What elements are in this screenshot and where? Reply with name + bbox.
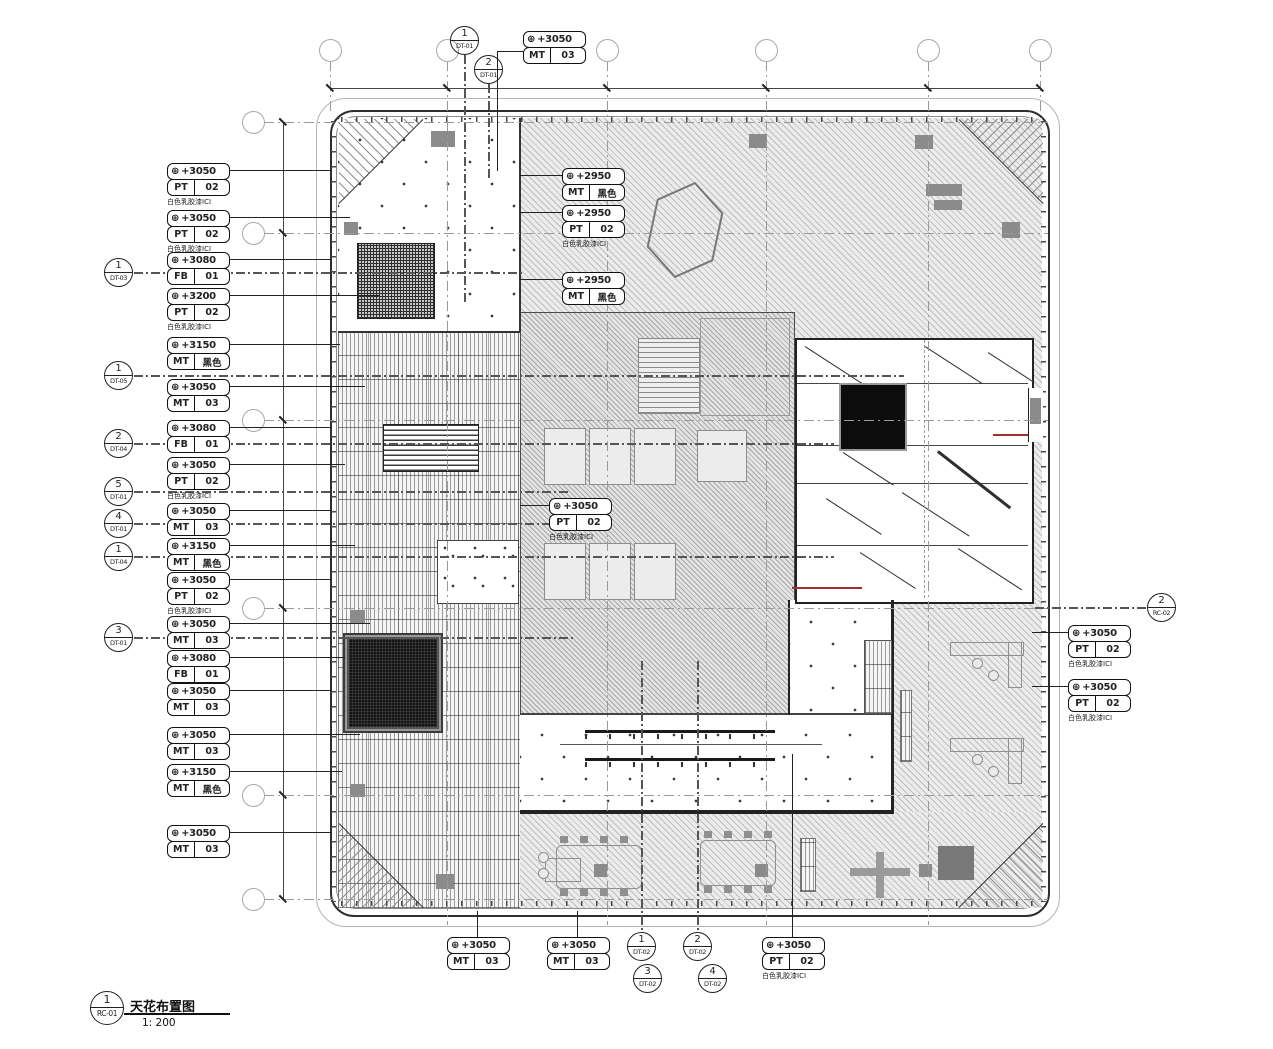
ceiling-elevation-tag: ⊕+2950 MT 黑色 xyxy=(562,272,625,306)
drawing-title-marker: 1 RC-01 xyxy=(90,991,124,1025)
drawing-title-underline xyxy=(124,1013,230,1015)
elevation-value: +3050 xyxy=(181,619,216,630)
elevation-value: +3050 xyxy=(181,166,216,177)
ceiling-elevation-tag: ⊕+3150 MT 黑色 xyxy=(167,538,230,572)
finish-code: FB xyxy=(168,269,195,284)
finish-code: PT xyxy=(1069,642,1096,657)
finish-code: MT xyxy=(168,396,195,411)
elevation-value: +3050 xyxy=(181,575,216,586)
finish-code: PT xyxy=(550,515,577,530)
finish-row: PT 02 xyxy=(1068,641,1131,658)
elevation-target-icon: ⊕ xyxy=(553,502,561,512)
elevation-target-icon: ⊕ xyxy=(566,172,574,182)
leader-line xyxy=(230,623,370,624)
finish-number: 02 xyxy=(195,305,229,320)
elevation-value-row: ⊕+3050 xyxy=(167,616,230,633)
finish-number: 02 xyxy=(195,474,229,489)
elevation-value-row: ⊕+3050 xyxy=(167,379,230,396)
elevation-value-row: ⊕+3050 xyxy=(167,503,230,520)
finish-number: 02 xyxy=(577,515,611,530)
finish-row: PT 02 xyxy=(762,953,825,970)
ceiling-elevation-tag: ⊕+3050 PT 02 白色乳胶漆ICI xyxy=(762,937,825,981)
elevation-value-row: ⊕+3050 xyxy=(167,210,230,227)
elevation-value-row: ⊕+2950 xyxy=(562,272,625,289)
elevation-value-row: ⊕+2950 xyxy=(562,168,625,185)
finish-description: 白色乳胶漆ICI xyxy=(167,491,230,501)
elevation-target-icon: ⊕ xyxy=(171,461,179,471)
elevation-target-icon: ⊕ xyxy=(171,654,179,664)
finish-code: MT xyxy=(448,954,475,969)
finish-code: MT xyxy=(168,781,195,796)
elevation-value: +3150 xyxy=(181,767,216,778)
ceiling-elevation-tag: ⊕+3050 PT 02 白色乳胶漆ICI xyxy=(549,498,612,542)
elevation-target-icon: ⊕ xyxy=(171,829,179,839)
elevation-value-row: ⊕+3050 xyxy=(549,498,612,515)
finish-number: 03 xyxy=(195,396,229,411)
elevation-target-icon: ⊕ xyxy=(171,731,179,741)
elevation-value-row: ⊕+2950 xyxy=(562,205,625,222)
finish-row: MT 黑色 xyxy=(562,184,625,201)
finish-number: 03 xyxy=(195,744,229,759)
elevation-target-icon: ⊕ xyxy=(171,507,179,517)
finish-row: PT 02 xyxy=(167,226,230,243)
ceiling-elevation-tag: ⊕+3050 MT 03 xyxy=(547,937,610,971)
ceiling-elevation-tag: ⊕+3150 MT 黑色 xyxy=(167,764,230,798)
leader-line xyxy=(230,217,350,218)
elevation-target-icon: ⊕ xyxy=(566,209,574,219)
finish-code: MT xyxy=(168,354,195,369)
elevation-target-icon: ⊕ xyxy=(171,167,179,177)
elevation-value: +2950 xyxy=(576,275,611,286)
finish-number: 03 xyxy=(575,954,609,969)
leader-line xyxy=(520,505,549,506)
leader-line xyxy=(230,386,365,387)
elevation-target-icon: ⊕ xyxy=(451,941,459,951)
ceiling-elevation-tag: ⊕+3050 PT 02 白色乳胶漆ICI xyxy=(1068,679,1131,723)
elevation-target-icon: ⊕ xyxy=(171,383,179,393)
elevation-value: +3080 xyxy=(181,423,216,434)
leader-line xyxy=(497,51,523,52)
finish-code: FB xyxy=(168,667,195,682)
elevation-value: +2950 xyxy=(576,208,611,219)
elevation-value: +3050 xyxy=(181,506,216,517)
finish-number: 02 xyxy=(195,227,229,242)
drawing-sheet: RC-01 xyxy=(91,1008,123,1020)
elevation-value: +3050 xyxy=(181,213,216,224)
elevation-value: +3050 xyxy=(181,828,216,839)
elevation-target-icon: ⊕ xyxy=(1072,683,1080,693)
leader-line xyxy=(230,170,332,171)
finish-number: 02 xyxy=(195,180,229,195)
elevation-value: +3050 xyxy=(537,34,572,45)
ceiling-elevation-tag: ⊕+3080 FB 01 xyxy=(167,650,230,684)
finish-row: MT 03 xyxy=(547,953,610,970)
finish-row: MT 黑色 xyxy=(167,554,230,571)
finish-row: MT 03 xyxy=(167,519,230,536)
finish-row: MT 03 xyxy=(167,395,230,412)
leader-line xyxy=(230,427,332,428)
leader-line xyxy=(230,295,380,296)
elevation-value-row: ⊕+3150 xyxy=(167,538,230,555)
finish-number: 03 xyxy=(551,48,585,63)
leader-line xyxy=(230,690,332,691)
elevation-value: +2950 xyxy=(576,171,611,182)
finish-number: 02 xyxy=(1096,696,1130,711)
elevation-value-row: ⊕+3050 xyxy=(523,31,586,48)
elevation-target-icon: ⊕ xyxy=(1072,629,1080,639)
elevation-value: +3050 xyxy=(561,940,596,951)
elevation-target-icon: ⊕ xyxy=(766,941,774,951)
finish-number: 02 xyxy=(1096,642,1130,657)
leader-line xyxy=(230,545,355,546)
elevation-target-icon: ⊕ xyxy=(171,292,179,302)
finish-code: PT xyxy=(168,180,195,195)
elevation-value-row: ⊕+3050 xyxy=(167,163,230,180)
finish-number: 03 xyxy=(195,520,229,535)
ceiling-elevation-tag: ⊕+2950 MT 黑色 xyxy=(562,168,625,202)
finish-row: PT 02 xyxy=(167,179,230,196)
elevation-target-icon: ⊕ xyxy=(171,256,179,266)
finish-code: PT xyxy=(563,222,590,237)
ceiling-elevation-tag: ⊕+3050 MT 03 xyxy=(167,683,230,717)
ceiling-elevation-tag: ⊕+3050 MT 03 xyxy=(167,379,230,413)
finish-number: 01 xyxy=(195,437,229,452)
elevation-tags: ⊕+3050 PT 02 白色乳胶漆ICI ⊕+3050 PT 02 白色乳胶漆… xyxy=(0,0,1273,1049)
leader-line xyxy=(520,175,562,176)
elevation-target-icon: ⊕ xyxy=(171,214,179,224)
finish-description: 白色乳胶漆ICI xyxy=(167,606,230,616)
finish-code: PT xyxy=(168,227,195,242)
elevation-value: +3050 xyxy=(181,686,216,697)
finish-number: 03 xyxy=(195,633,229,648)
finish-row: PT 02 xyxy=(167,588,230,605)
finish-row: FB 01 xyxy=(167,666,230,683)
elevation-value: +3150 xyxy=(181,340,216,351)
elevation-value: +3050 xyxy=(181,460,216,471)
elevation-target-icon: ⊕ xyxy=(566,276,574,286)
elevation-value-row: ⊕+3050 xyxy=(167,572,230,589)
ceiling-elevation-tag: ⊕+3050 MT 03 xyxy=(167,727,230,761)
leader-line xyxy=(230,259,332,260)
ceiling-elevation-tag: ⊕+3050 MT 03 xyxy=(523,31,586,65)
finish-row: MT 03 xyxy=(167,743,230,760)
elevation-value-row: ⊕+3050 xyxy=(167,727,230,744)
leader-line xyxy=(577,911,578,937)
finish-row: PT 02 xyxy=(562,221,625,238)
finish-code: MT xyxy=(168,633,195,648)
finish-description: 白色乳胶漆ICI xyxy=(167,322,230,332)
leader-line xyxy=(520,279,562,280)
finish-number: 01 xyxy=(195,269,229,284)
finish-number: 01 xyxy=(195,667,229,682)
elevation-target-icon: ⊕ xyxy=(171,768,179,778)
elevation-value: +3050 xyxy=(563,501,598,512)
finish-row: MT 黑色 xyxy=(167,353,230,370)
finish-row: MT 03 xyxy=(167,699,230,716)
leader-line xyxy=(230,657,345,658)
ceiling-elevation-tag: ⊕+3050 MT 03 xyxy=(167,616,230,650)
ceiling-elevation-tag: ⊕+3050 MT 03 xyxy=(447,937,510,971)
ceiling-elevation-tag: ⊕+3050 PT 02 白色乳胶漆ICI xyxy=(1068,625,1131,669)
ceiling-elevation-tag: ⊕+2950 PT 02 白色乳胶漆ICI xyxy=(562,205,625,249)
elevation-value: +3050 xyxy=(461,940,496,951)
elevation-value-row: ⊕+3080 xyxy=(167,252,230,269)
leader-line xyxy=(230,579,332,580)
ceiling-elevation-tag: ⊕+3080 FB 01 xyxy=(167,252,230,286)
elevation-value: +3200 xyxy=(181,291,216,302)
elevation-value: +3150 xyxy=(181,541,216,552)
finish-number: 02 xyxy=(790,954,824,969)
leader-line xyxy=(230,344,340,345)
finish-row: FB 01 xyxy=(167,436,230,453)
elevation-target-icon: ⊕ xyxy=(527,35,535,45)
finish-description: 白色乳胶漆ICI xyxy=(549,532,612,542)
finish-code: MT xyxy=(548,954,575,969)
elevation-value: +3050 xyxy=(1082,628,1117,639)
ceiling-elevation-tag: ⊕+3050 PT 02 白色乳胶漆ICI xyxy=(167,210,230,254)
finish-number: 03 xyxy=(195,842,229,857)
elevation-value-row: ⊕+3080 xyxy=(167,650,230,667)
elevation-target-icon: ⊕ xyxy=(551,941,559,951)
leader-line xyxy=(230,771,342,772)
elevation-value-row: ⊕+3050 xyxy=(447,937,510,954)
elevation-value: +3050 xyxy=(776,940,811,951)
elevation-value-row: ⊕+3050 xyxy=(167,825,230,842)
ceiling-elevation-tag: ⊕+3150 MT 黑色 xyxy=(167,337,230,371)
finish-code: PT xyxy=(168,305,195,320)
elevation-target-icon: ⊕ xyxy=(171,620,179,630)
finish-row: FB 01 xyxy=(167,268,230,285)
ceiling-elevation-tag: ⊕+3050 MT 03 xyxy=(167,825,230,859)
finish-code: MT xyxy=(168,744,195,759)
leader-line xyxy=(1032,632,1068,633)
drawing-scale: 1: 200 xyxy=(142,1017,176,1029)
finish-row: MT 03 xyxy=(167,632,230,649)
elevation-target-icon: ⊕ xyxy=(171,341,179,351)
finish-number: 03 xyxy=(195,700,229,715)
ceiling-elevation-tag: ⊕+3200 PT 02 白色乳胶漆ICI xyxy=(167,288,230,332)
finish-description: 白色乳胶漆ICI xyxy=(562,239,625,249)
finish-row: PT 02 xyxy=(549,514,612,531)
finish-number: 02 xyxy=(195,589,229,604)
elevation-value-row: ⊕+3080 xyxy=(167,420,230,437)
elevation-value: +3080 xyxy=(181,255,216,266)
leader-line xyxy=(230,464,345,465)
finish-number: 黑色 xyxy=(195,354,229,369)
finish-code: MT xyxy=(168,520,195,535)
finish-code: FB xyxy=(168,437,195,452)
finish-code: MT xyxy=(524,48,551,63)
finish-row: MT 03 xyxy=(447,953,510,970)
leader-line xyxy=(1032,686,1068,687)
finish-code: MT xyxy=(168,700,195,715)
elevation-value: +3080 xyxy=(181,653,216,664)
elevation-value: +3050 xyxy=(1082,682,1117,693)
finish-row: PT 02 xyxy=(167,304,230,321)
finish-row: PT 02 xyxy=(167,473,230,490)
leader-line xyxy=(792,754,793,937)
finish-row: MT 03 xyxy=(167,841,230,858)
finish-number: 黑色 xyxy=(195,555,229,570)
finish-code: PT xyxy=(763,954,790,969)
finish-description: 白色乳胶漆ICI xyxy=(1068,713,1131,723)
leader-line xyxy=(477,911,478,937)
finish-description: 白色乳胶漆ICI xyxy=(167,197,230,207)
elevation-value-row: ⊕+3050 xyxy=(167,683,230,700)
finish-number: 03 xyxy=(475,954,509,969)
elevation-value-row: ⊕+3150 xyxy=(167,337,230,354)
ceiling-elevation-tag: ⊕+3050 PT 02 白色乳胶漆ICI xyxy=(167,572,230,616)
ceiling-elevation-tag: ⊕+3050 PT 02 白色乳胶漆ICI xyxy=(167,163,230,207)
elevation-value-row: ⊕+3150 xyxy=(167,764,230,781)
leader-line xyxy=(230,510,332,511)
elevation-value: +3050 xyxy=(181,382,216,393)
finish-code: MT xyxy=(168,842,195,857)
elevation-value-row: ⊕+3200 xyxy=(167,288,230,305)
finish-number: 黑色 xyxy=(195,781,229,796)
elevation-target-icon: ⊕ xyxy=(171,576,179,586)
finish-code: MT xyxy=(563,185,590,200)
leader-line xyxy=(230,832,332,833)
leader-line xyxy=(497,51,498,171)
finish-code: PT xyxy=(168,474,195,489)
ceiling-plan-sheet: 1 DT-03 1 DT-05 2 DT-04 5 DT-01 4 xyxy=(0,0,1273,1049)
finish-row: MT 黑色 xyxy=(562,288,625,305)
ceiling-elevation-tag: ⊕+3050 MT 03 xyxy=(167,503,230,537)
finish-code: MT xyxy=(563,289,590,304)
leader-line xyxy=(520,212,562,213)
finish-row: PT 02 xyxy=(1068,695,1131,712)
finish-description: 白色乳胶漆ICI xyxy=(762,971,825,981)
elevation-value-row: ⊕+3050 xyxy=(762,937,825,954)
elevation-value-row: ⊕+3050 xyxy=(1068,679,1131,696)
elevation-value-row: ⊕+3050 xyxy=(1068,625,1131,642)
finish-number: 黑色 xyxy=(590,185,624,200)
finish-number: 黑色 xyxy=(590,289,624,304)
finish-code: PT xyxy=(1069,696,1096,711)
finish-code: PT xyxy=(168,589,195,604)
elevation-target-icon: ⊕ xyxy=(171,424,179,434)
finish-row: MT 03 xyxy=(523,47,586,64)
elevation-target-icon: ⊕ xyxy=(171,687,179,697)
finish-number: 02 xyxy=(590,222,624,237)
leader-line xyxy=(230,734,360,735)
ceiling-elevation-tag: ⊕+3050 PT 02 白色乳胶漆ICI xyxy=(167,457,230,501)
finish-row: MT 黑色 xyxy=(167,780,230,797)
drawing-number: 1 xyxy=(91,992,123,1008)
elevation-value-row: ⊕+3050 xyxy=(547,937,610,954)
elevation-target-icon: ⊕ xyxy=(171,542,179,552)
ceiling-elevation-tag: ⊕+3080 FB 01 xyxy=(167,420,230,454)
elevation-value: +3050 xyxy=(181,730,216,741)
finish-code: MT xyxy=(168,555,195,570)
elevation-value-row: ⊕+3050 xyxy=(167,457,230,474)
finish-description: 白色乳胶漆ICI xyxy=(1068,659,1131,669)
